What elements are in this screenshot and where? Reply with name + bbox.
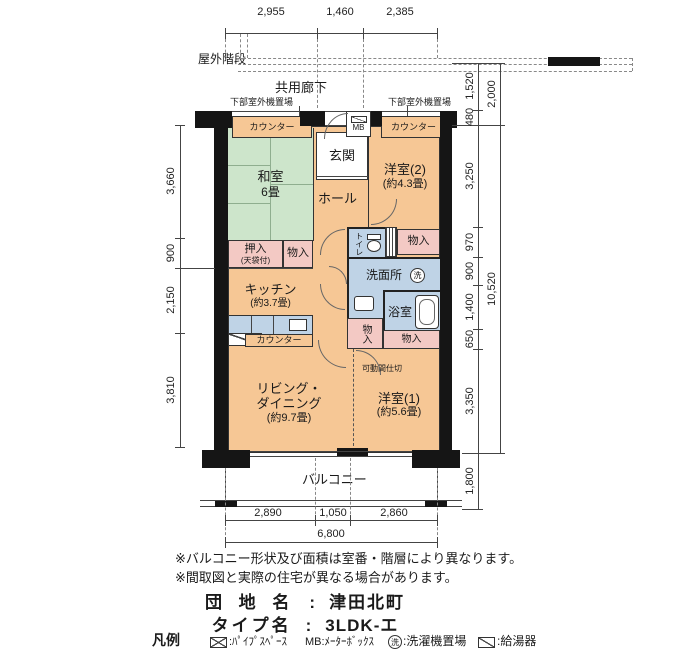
kitchen-label: キッチン xyxy=(244,282,296,298)
dim-tick xyxy=(437,28,438,39)
counter-divider xyxy=(251,316,252,334)
japanese-room: 和室 6畳 xyxy=(228,128,314,241)
dim-line xyxy=(225,542,437,543)
balcony-label: バルコニー xyxy=(302,473,367,488)
western-room-1: 洋室(1) (約5.6畳) xyxy=(358,385,440,425)
dim-bottom-total: 6,800 xyxy=(301,528,361,540)
dim-extension xyxy=(225,468,226,545)
dim-extension xyxy=(452,125,505,126)
storage-1: 物入 xyxy=(283,240,313,268)
dim-left-2: 900 xyxy=(165,228,177,278)
floorplan-canvas: 2,955 1,460 2,385 屋外階段 共用廊下 下部室外機置場 下部室外… xyxy=(0,0,700,650)
storage-4-label: 物入 xyxy=(402,334,422,346)
storage-2: 物入 xyxy=(397,229,440,255)
living-dining-label-1: リビング・ xyxy=(256,381,321,397)
heater-in-mb-symbol xyxy=(351,116,367,123)
dim-left-4: 3,810 xyxy=(165,365,177,415)
entrance-label: 玄関 xyxy=(329,148,355,164)
storage-3: 物入 xyxy=(347,318,383,349)
wall-left xyxy=(214,111,228,453)
dim-tick xyxy=(175,268,215,269)
dim-extension xyxy=(437,39,438,58)
wall-segment xyxy=(202,450,250,468)
tatami-line xyxy=(228,203,270,204)
dim-tick xyxy=(175,125,185,126)
dim-tick xyxy=(437,515,438,526)
dim-tick xyxy=(363,28,364,39)
dim-tick xyxy=(225,515,226,526)
japanese-room-label: 和室 xyxy=(257,169,283,185)
bathroom-label: 浴室 xyxy=(388,305,412,319)
legend-title: 凡例 xyxy=(152,632,180,648)
shared-corridor-label: 共用廊下 xyxy=(275,81,327,96)
balcony-rail-block xyxy=(215,501,237,507)
washer-legend-icon: 洗 xyxy=(388,635,402,649)
dim-bottom-1: 2,890 xyxy=(238,507,298,519)
outdoor-unit-left-label: 下部室外機置場 xyxy=(230,97,293,107)
dim-bottom-3: 2,860 xyxy=(364,507,424,519)
balcony-rail xyxy=(200,500,462,501)
meter-box: MB xyxy=(346,111,371,137)
dim-tick xyxy=(462,509,483,510)
outdoor-unit-right-label: 下部室外機置場 xyxy=(388,97,451,107)
window-line xyxy=(250,451,412,452)
western-room-1-label: 洋室(1) xyxy=(378,391,420,407)
balcony-rail-block xyxy=(425,501,447,507)
storage-4: 物入 xyxy=(383,330,440,349)
dim-tick xyxy=(437,537,438,548)
dim-tick xyxy=(175,447,185,448)
toilet-room: トイレ xyxy=(347,227,389,261)
kitchen-room: キッチン (約3.7畳) xyxy=(228,278,313,314)
bathroom: 浴室 xyxy=(383,290,444,334)
wall-right xyxy=(440,111,452,453)
legend-washer-text: :洗濯機置場 xyxy=(403,635,466,649)
dim-line xyxy=(180,125,181,447)
dim-top-3: 2,385 xyxy=(365,6,435,18)
dim-right-8: 3,350 xyxy=(464,376,476,426)
counter-divider xyxy=(273,316,274,334)
entrance-step-line xyxy=(316,176,368,177)
storage-3-label: 物入 xyxy=(359,324,371,344)
dim-right-2: 480 xyxy=(464,92,476,142)
living-dining-room: リビング・ ダイニング (約9.7畳) xyxy=(228,375,350,431)
western-room-1-size: (約5.6畳) xyxy=(377,406,422,419)
dim-left-3: 2,150 xyxy=(165,275,177,325)
dim-line xyxy=(225,520,437,521)
dim-bottom-2: 1,050 xyxy=(303,507,363,519)
wall-segment xyxy=(337,448,368,456)
note-layout: ※間取図と実際の住宅が異なる場合があります。 xyxy=(175,571,458,586)
dim-tick xyxy=(225,537,226,548)
kitchen-counter-unit xyxy=(228,315,313,335)
stairs-line xyxy=(247,34,248,58)
toilet-icon xyxy=(366,234,382,254)
kitchen-size: (約3.7畳) xyxy=(250,298,291,310)
legend-pipe-space-text: :ﾊﾟｲﾌﾟｽﾍﾟｰｽ xyxy=(229,636,287,649)
toilet-label: トイレ xyxy=(354,232,364,256)
wall-segment xyxy=(412,450,460,468)
kitchen-counter-label: カウンター xyxy=(256,335,301,346)
kitchen-counter-label-box: カウンター xyxy=(245,334,313,347)
stairs-line xyxy=(240,34,241,58)
dim-top-1: 2,955 xyxy=(236,6,306,18)
dim-extension xyxy=(452,63,505,64)
stairs-wall-block xyxy=(548,57,600,66)
dim-extension xyxy=(437,468,438,545)
washroom-extension xyxy=(347,290,385,318)
toilet-bowl xyxy=(367,240,381,252)
dim-right-3: 3,250 xyxy=(464,151,476,201)
estate-name-separator: : xyxy=(309,593,315,612)
closet-oshiire-label: 押入 xyxy=(245,243,267,256)
dim-right-7: 650 xyxy=(464,314,476,364)
dim-right-outer-2: 10,520 xyxy=(486,264,498,314)
storage-1-label: 物入 xyxy=(287,247,309,260)
movable-partition-line xyxy=(353,349,354,451)
washroom: 洗面所 洗 xyxy=(347,257,444,294)
type-name-value: 3LDK-エ xyxy=(325,616,398,635)
dim-line xyxy=(478,63,479,509)
window-line xyxy=(250,456,412,457)
counter-top-right: カウンター xyxy=(381,116,446,138)
dim-left-1: 3,660 xyxy=(165,156,177,206)
washer-place-symbol: 洗 xyxy=(410,268,425,283)
estate-name-row: 団 地 名:津田北町 xyxy=(105,588,505,613)
type-name-separator: : xyxy=(306,616,312,635)
dim-tick xyxy=(175,333,185,334)
dim-tick xyxy=(315,515,316,526)
pipe-space-legend-icon xyxy=(210,637,227,648)
living-dining-size: (約9.7畳) xyxy=(267,412,312,425)
heater-legend-icon xyxy=(478,637,495,648)
closet-oshiire: 押入 (天袋付) xyxy=(228,240,283,268)
tatami-line xyxy=(228,165,270,166)
counter-top-left-label: カウンター xyxy=(249,122,294,133)
kitchen-sink xyxy=(289,319,307,331)
living-dining-label-2: ダイニング xyxy=(256,396,321,412)
dim-line xyxy=(500,63,501,453)
estate-name-value: 津田北町 xyxy=(329,593,405,612)
stairs-line xyxy=(632,58,633,71)
note-balcony: ※バルコニー形状及び面積は室番・階層により異なります。 xyxy=(175,552,522,567)
estate-name-label: 団 地 名 xyxy=(205,593,295,612)
pipe-space-symbol xyxy=(385,227,397,257)
dim-tick xyxy=(350,515,351,526)
dim-extension xyxy=(462,453,505,454)
dim-tick xyxy=(225,28,226,39)
storage-2-label: 物入 xyxy=(408,235,430,248)
bathtub-inner xyxy=(419,299,435,325)
meter-box-label: MB xyxy=(353,123,365,133)
wall-line xyxy=(228,268,313,269)
entrance-room: 玄関 xyxy=(316,132,368,180)
dim-extension xyxy=(317,39,318,108)
stairs-line xyxy=(238,71,632,72)
hall-label: ホール xyxy=(318,192,357,207)
wall-segment xyxy=(300,111,325,126)
counter-top-right-label: カウンター xyxy=(391,122,436,133)
legend-meter-box-text: MB:ﾒｰﾀｰﾎﾞｯｸｽ xyxy=(305,636,374,649)
type-name-label: タイプ名 xyxy=(212,616,292,635)
legend-heater-text: :給湯器 xyxy=(497,635,536,649)
dim-right-outer-1: 2,000 xyxy=(486,69,498,119)
washroom-label: 洗面所 xyxy=(366,268,402,282)
dim-line xyxy=(225,33,437,34)
japanese-room-size: 6畳 xyxy=(261,185,280,199)
western-room-2-size: (約4.3畳) xyxy=(383,178,428,191)
bathtub-icon xyxy=(415,295,439,329)
dim-right-9: 1,800 xyxy=(464,456,476,506)
entrance-door-arc xyxy=(324,113,348,139)
western-room-2-label: 洋室(2) xyxy=(384,162,426,178)
wall-segment xyxy=(371,111,382,126)
dim-extension xyxy=(363,39,364,108)
washroom-sink xyxy=(354,296,374,311)
dim-tick xyxy=(317,28,318,39)
closet-oshiire-sub: (天袋付) xyxy=(241,256,270,266)
